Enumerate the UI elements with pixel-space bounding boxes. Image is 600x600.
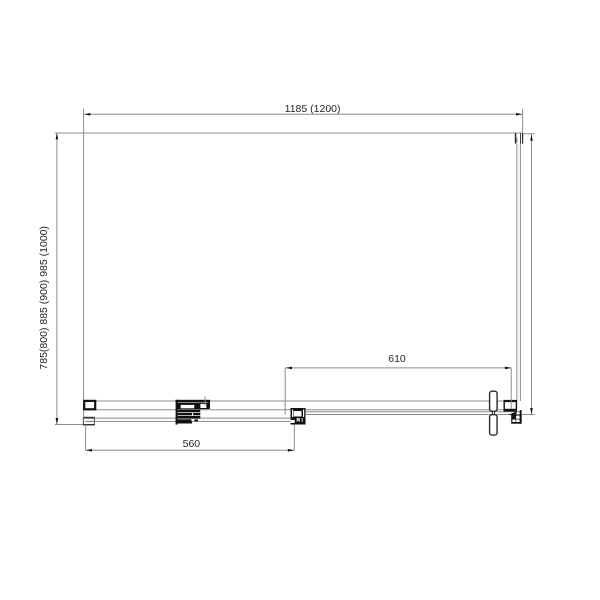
svg-text:1185 (1200): 1185 (1200) <box>285 103 341 115</box>
svg-text:560: 560 <box>183 438 201 450</box>
svg-text:610: 610 <box>388 353 406 365</box>
svg-text:785(800) 885 (900) 985 (1000): 785(800) 885 (900) 985 (1000) <box>38 226 50 370</box>
